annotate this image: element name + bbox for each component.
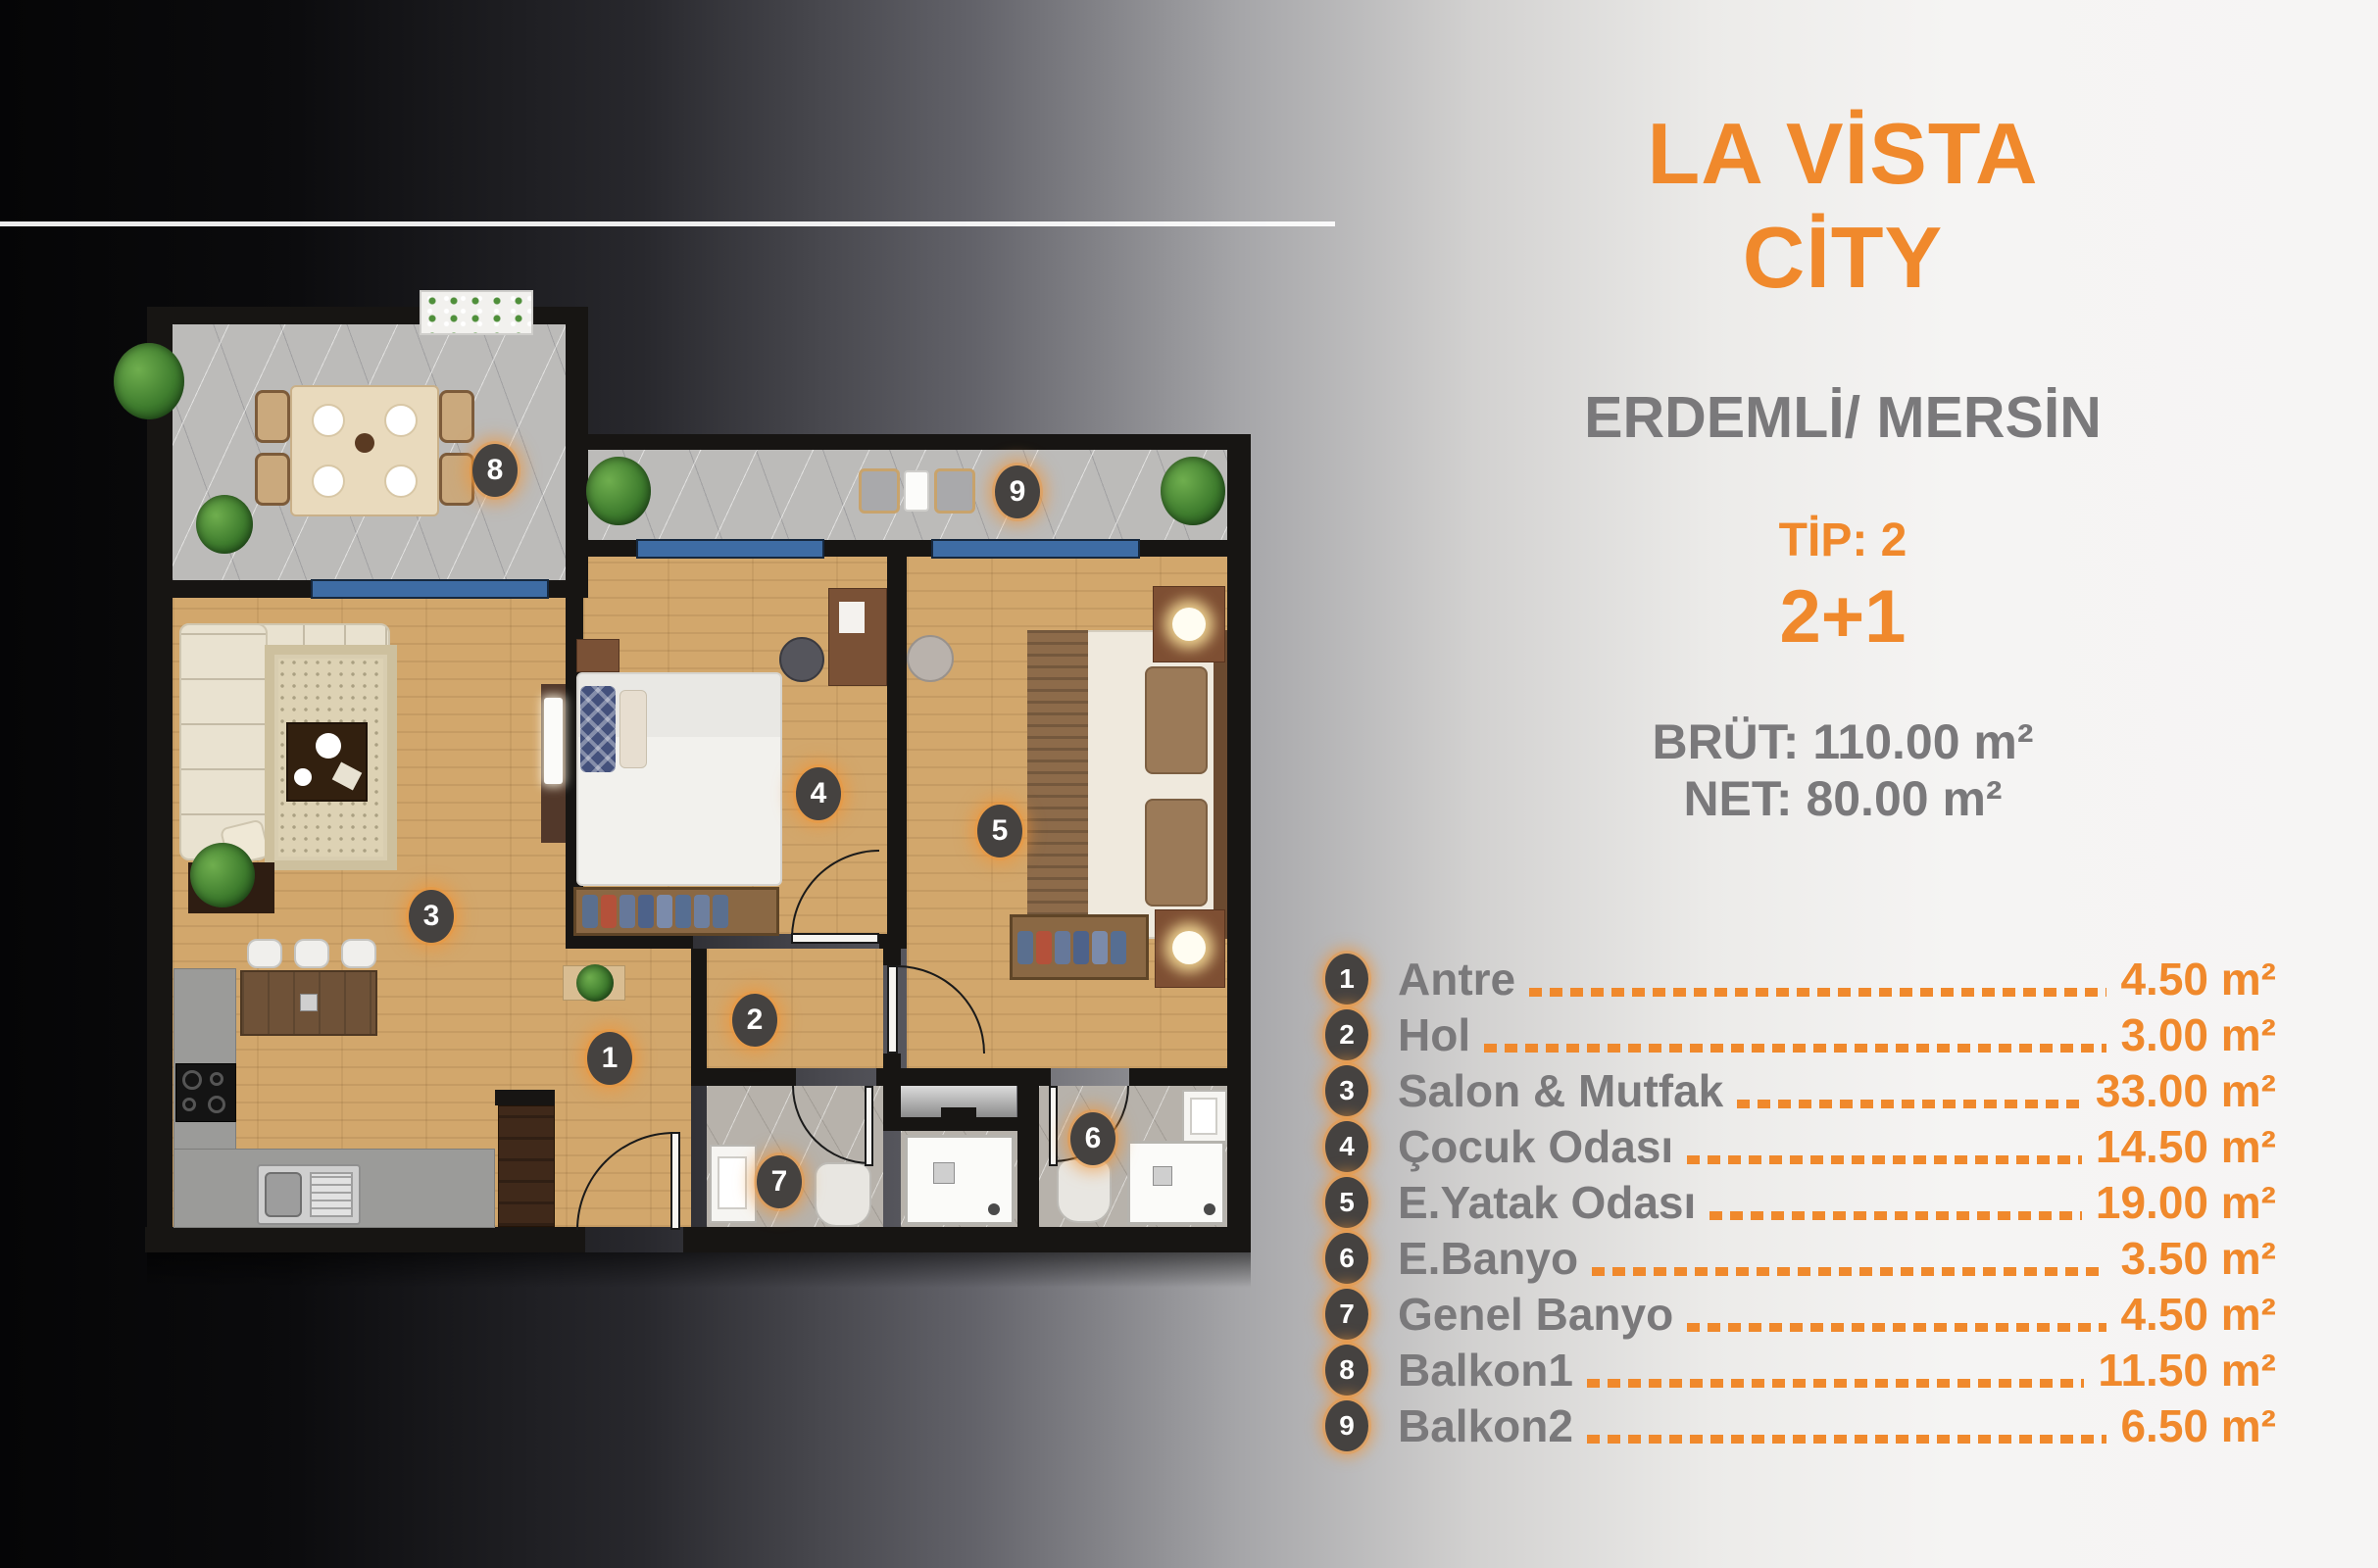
wall <box>901 1117 1019 1131</box>
legend-badge: 2 <box>1325 1009 1368 1060</box>
legend-room-area: 3.00 m² <box>2120 1008 2276 1061</box>
room-badge-2: 2 <box>732 994 777 1047</box>
legend-row: 8 Balkon1 11.50 m² <box>1325 1342 2276 1397</box>
child-pillow <box>619 690 647 768</box>
legend-room-name: Hol <box>1398 1008 1470 1061</box>
badge-number: 8 <box>487 454 504 487</box>
dining-chair <box>439 453 474 506</box>
stove-burner <box>182 1098 196 1111</box>
gross-area: BRÜT: 110.00 m² <box>1470 713 2215 770</box>
wardrobe-clothes <box>694 895 710 928</box>
plant <box>196 495 253 554</box>
headboard <box>1214 630 1227 939</box>
window <box>931 539 1140 559</box>
wall <box>566 434 1251 450</box>
lamp <box>1172 931 1206 964</box>
master-wardrobe <box>1010 914 1149 980</box>
legend-room-name: Balkon1 <box>1398 1344 1573 1396</box>
legend-room-area: 3.50 m² <box>2120 1232 2276 1285</box>
legend-leader-dots <box>1592 1267 2106 1276</box>
legend-room-name: Çocuk Odası <box>1398 1120 1673 1173</box>
wall <box>691 949 707 1068</box>
tall-cabinet <box>498 1105 555 1227</box>
toilet <box>1057 1158 1112 1223</box>
ottoman <box>907 635 954 682</box>
legend-leader-dots <box>1587 1435 2107 1444</box>
legend-row: 7 Genel Banyo 4.50 m² <box>1325 1286 2276 1342</box>
legend-room-area: 6.50 m² <box>2120 1399 2276 1452</box>
balcony-chair <box>859 468 900 514</box>
legend-leader-dots <box>1737 1100 2082 1108</box>
decor-line <box>0 221 1335 226</box>
room-badge-6: 6 <box>1070 1112 1115 1165</box>
badge-number: 9 <box>1010 475 1026 509</box>
badge-number: 7 <box>771 1165 788 1199</box>
legend-room-name: E.Yatak Odası <box>1398 1176 1696 1229</box>
bed-pillow <box>1145 666 1208 774</box>
child-pillow <box>580 686 616 772</box>
plant <box>576 964 614 1002</box>
sink-bowl <box>265 1172 302 1217</box>
island-fixture <box>300 994 318 1011</box>
legend-row: 3 Salon & Mutfak 33.00 m² <box>1325 1062 2276 1118</box>
legend-badge: 4 <box>1325 1121 1368 1172</box>
wall <box>887 556 907 934</box>
wall <box>883 1053 901 1131</box>
legend-badge: 8 <box>1325 1345 1368 1396</box>
legend-badge: 5 <box>1325 1177 1368 1228</box>
wardrobe-clothes <box>1017 931 1033 964</box>
badge-number: 1 <box>602 1042 619 1075</box>
legend-room-name: Salon & Mutfak <box>1398 1064 1723 1117</box>
bathroom-sink-basin <box>718 1156 747 1209</box>
legend-room-area: 4.50 m² <box>2120 1288 2276 1341</box>
legend-room-area: 33.00 m² <box>2096 1064 2276 1117</box>
legend-leader-dots <box>1529 988 2106 997</box>
dining-plate <box>384 404 418 437</box>
legend-badge: 3 <box>1325 1065 1368 1116</box>
stove-burner <box>210 1072 223 1086</box>
wardrobe-clothes <box>601 895 617 928</box>
wall <box>145 1227 585 1252</box>
wall <box>588 540 636 557</box>
legend-room-area: 19.00 m² <box>2096 1176 2276 1229</box>
bed-pillow <box>1145 799 1208 906</box>
wall <box>566 307 588 596</box>
wall <box>1017 1068 1039 1227</box>
legend-room-area: 4.50 m² <box>2120 953 2276 1005</box>
coffee-table-plate <box>294 768 312 786</box>
bed-throw <box>1027 630 1088 939</box>
dining-chair <box>255 390 290 443</box>
project-title-line2: CİTY <box>1529 206 2156 310</box>
room-badge-5: 5 <box>977 805 1022 857</box>
legend-room-area: 11.50 m² <box>2098 1344 2276 1396</box>
shower-drain <box>988 1203 1000 1215</box>
wardrobe-clothes <box>619 895 635 928</box>
legend-leader-dots <box>1484 1044 2106 1053</box>
stove-burner <box>182 1070 202 1090</box>
badge-number: 6 <box>1085 1122 1102 1155</box>
shower-head <box>933 1162 955 1184</box>
bathroom-sink-basin <box>1190 1098 1217 1135</box>
legend-badge: 6 <box>1325 1233 1368 1284</box>
bar-stool <box>294 939 329 968</box>
window <box>311 579 549 599</box>
dining-chair <box>439 390 474 443</box>
legend-leader-dots <box>1587 1379 2084 1388</box>
dining-plate <box>312 404 345 437</box>
legend-row: 1 Antre 4.50 m² <box>1325 951 2276 1006</box>
legend-row: 4 Çocuk Odası 14.50 m² <box>1325 1118 2276 1174</box>
shower-drain <box>1204 1203 1215 1215</box>
dining-bowl <box>355 433 374 453</box>
flower-box <box>420 290 533 335</box>
dining-chair <box>255 453 290 506</box>
sink-drainer <box>310 1172 353 1217</box>
poster: 1 2 3 4 5 6 7 8 9 LA VİSTA CİTY ERDEMLİ/… <box>0 0 2378 1568</box>
shaft-vent <box>941 1107 976 1117</box>
room-badge-4: 4 <box>796 767 841 820</box>
badge-number: 3 <box>423 900 440 933</box>
plant <box>1161 457 1225 525</box>
project-title: LA VİSTA CİTY <box>1529 102 2156 310</box>
tv <box>544 698 563 784</box>
legend-room-name: E.Banyo <box>1398 1232 1578 1285</box>
wall <box>147 307 173 1252</box>
wall <box>824 540 931 557</box>
legend-leader-dots <box>1687 1155 2082 1164</box>
wardrobe-clothes <box>713 895 728 928</box>
legend-badge: 7 <box>1325 1289 1368 1340</box>
wardrobe-clothes <box>1092 931 1108 964</box>
legend-room-name: Genel Banyo <box>1398 1288 1673 1341</box>
badge-number: 4 <box>811 777 827 810</box>
legend-room-name: Balkon2 <box>1398 1399 1573 1452</box>
net-area: NET: 80.00 m² <box>1470 770 2215 827</box>
wardrobe-clothes <box>675 895 691 928</box>
room-badge-1: 1 <box>587 1032 632 1085</box>
room-legend: 1 Antre 4.50 m² 2 Hol 3.00 m² 3 Salon & … <box>1325 951 2276 1453</box>
desk-chair <box>779 637 824 682</box>
legend-leader-dots <box>1687 1323 2106 1332</box>
bar-stool <box>247 939 282 968</box>
plan-shadow <box>147 1252 1251 1288</box>
legend-badge: 1 <box>1325 954 1368 1004</box>
legend-badge: 9 <box>1325 1400 1368 1451</box>
window <box>636 539 824 559</box>
stove-burner <box>208 1096 225 1113</box>
wardrobe-clothes <box>1111 931 1126 964</box>
shower-head <box>1153 1166 1172 1186</box>
wall <box>691 1068 796 1086</box>
child-bedside <box>576 639 619 672</box>
room-badge-9: 9 <box>995 465 1040 518</box>
wall <box>495 1090 555 1105</box>
desk-paper <box>839 602 865 633</box>
badge-number: 5 <box>992 814 1009 848</box>
wall <box>566 934 693 949</box>
wall <box>1140 540 1227 557</box>
wardrobe-clothes <box>1036 931 1052 964</box>
legend-row: 6 E.Banyo 3.50 m² <box>1325 1230 2276 1286</box>
dining-plate <box>384 465 418 498</box>
plant <box>114 343 184 419</box>
legend-row: 5 E.Yatak Odası 19.00 m² <box>1325 1174 2276 1230</box>
badge-number: 2 <box>747 1004 764 1037</box>
plant <box>190 843 255 907</box>
unit-type: TİP: 2 <box>1529 514 2156 567</box>
toilet <box>815 1162 871 1227</box>
room-badge-3: 3 <box>409 890 454 943</box>
wardrobe-clothes <box>1073 931 1089 964</box>
lamp <box>1172 608 1206 641</box>
entry-door <box>670 1132 680 1230</box>
child-wardrobe <box>573 887 779 936</box>
childroom-door <box>791 933 879 944</box>
bathroom-ensuite-door <box>1049 1086 1058 1166</box>
legend-row: 2 Hol 3.00 m² <box>1325 1006 2276 1062</box>
dining-plate <box>312 465 345 498</box>
wardrobe-clothes <box>582 895 598 928</box>
legend-room-name: Antre <box>1398 953 1515 1005</box>
legend-room-area: 14.50 m² <box>2096 1120 2276 1173</box>
wardrobe-clothes <box>1055 931 1070 964</box>
project-title-line1: LA VİSTA <box>1529 102 2156 206</box>
balcony-chair <box>934 468 975 514</box>
balcony-table <box>904 470 929 512</box>
room-badge-8: 8 <box>472 444 518 497</box>
bathroom-general-door <box>865 1086 873 1166</box>
wall <box>683 1227 1251 1252</box>
bar-stool <box>341 939 376 968</box>
legend-leader-dots <box>1709 1211 2082 1220</box>
wall <box>883 934 901 965</box>
wardrobe-clothes <box>638 895 654 928</box>
wardrobe-clothes <box>657 895 672 928</box>
wall <box>1227 434 1251 1252</box>
coffee-table-plate <box>316 733 341 759</box>
legend-row: 9 Balkon2 6.50 m² <box>1325 1397 2276 1453</box>
room-badge-7: 7 <box>757 1155 802 1208</box>
masterbedroom-door <box>887 965 898 1053</box>
project-location: ERDEMLİ/ MERSİN <box>1470 384 2215 451</box>
unit-layout: 2+1 <box>1529 574 2156 660</box>
plant <box>586 457 651 525</box>
